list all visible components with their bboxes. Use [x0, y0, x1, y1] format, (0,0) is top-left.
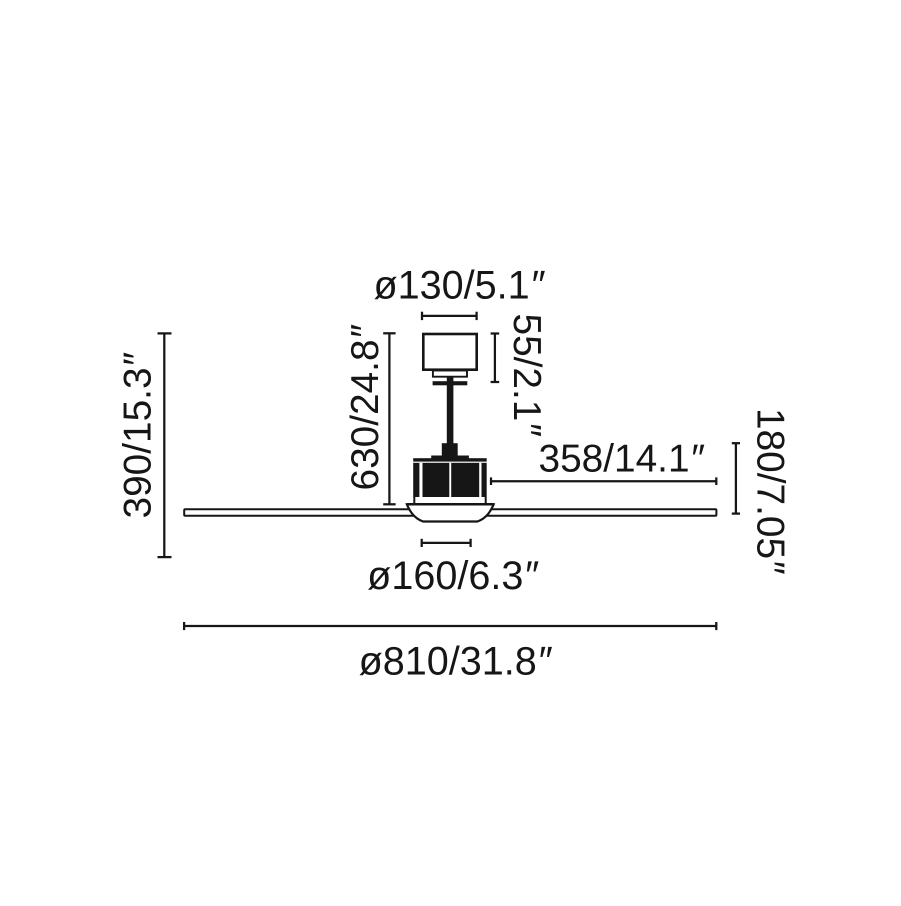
- svg-text:630/24.8″: 630/24.8″: [344, 324, 387, 490]
- svg-text:ø810/31.8″: ø810/31.8″: [359, 639, 553, 683]
- svg-text:55/2.1″: 55/2.1″: [505, 314, 548, 437]
- svg-text:ø160/6.3″: ø160/6.3″: [367, 554, 539, 598]
- svg-text:390/15.3″: 390/15.3″: [117, 352, 160, 518]
- svg-text:358/14.1″: 358/14.1″: [539, 437, 705, 480]
- svg-text:ø130/5.1″: ø130/5.1″: [373, 263, 545, 307]
- svg-text:180/7.05″: 180/7.05″: [749, 408, 792, 574]
